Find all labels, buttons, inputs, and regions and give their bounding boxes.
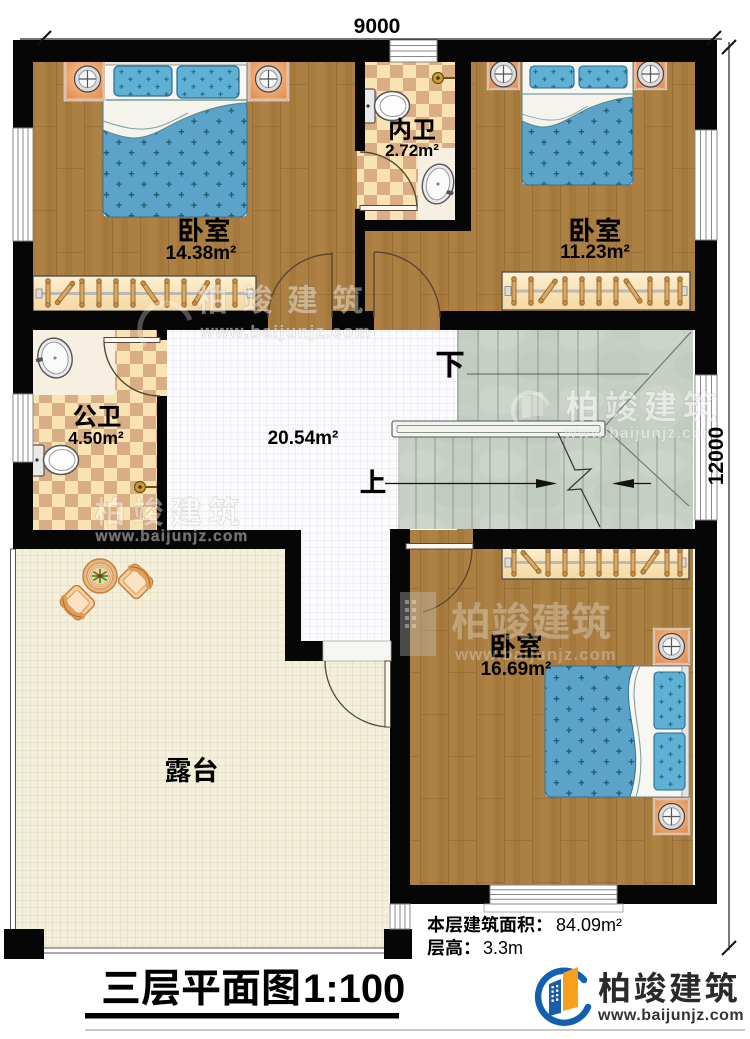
svg-text:1:100: 1:100 <box>303 967 405 1011</box>
svg-text:3.3m: 3.3m <box>483 938 523 958</box>
svg-text:84.09m²: 84.09m² <box>556 915 622 935</box>
svg-text:11.23m²: 11.23m² <box>560 242 630 263</box>
svg-text:www.baijunjz.com: www.baijunjz.com <box>564 425 718 442</box>
svg-text:4.50m²: 4.50m² <box>68 428 124 448</box>
svg-text:12000: 12000 <box>705 427 728 485</box>
svg-text:14.38m²: 14.38m² <box>166 243 237 264</box>
svg-text:www.baijunjz.com: www.baijunjz.com <box>95 528 249 545</box>
svg-text:20.54m²: 20.54m² <box>268 428 339 449</box>
svg-text:9000: 9000 <box>354 15 401 38</box>
svg-text:www.baijunjz.com: www.baijunjz.com <box>200 322 372 341</box>
svg-text:2.72m²: 2.72m² <box>385 141 439 160</box>
svg-text:www.baijunjz.com: www.baijunjz.com <box>454 646 617 664</box>
svg-text:www.baijunjz.com: www.baijunjz.com <box>597 1007 744 1024</box>
